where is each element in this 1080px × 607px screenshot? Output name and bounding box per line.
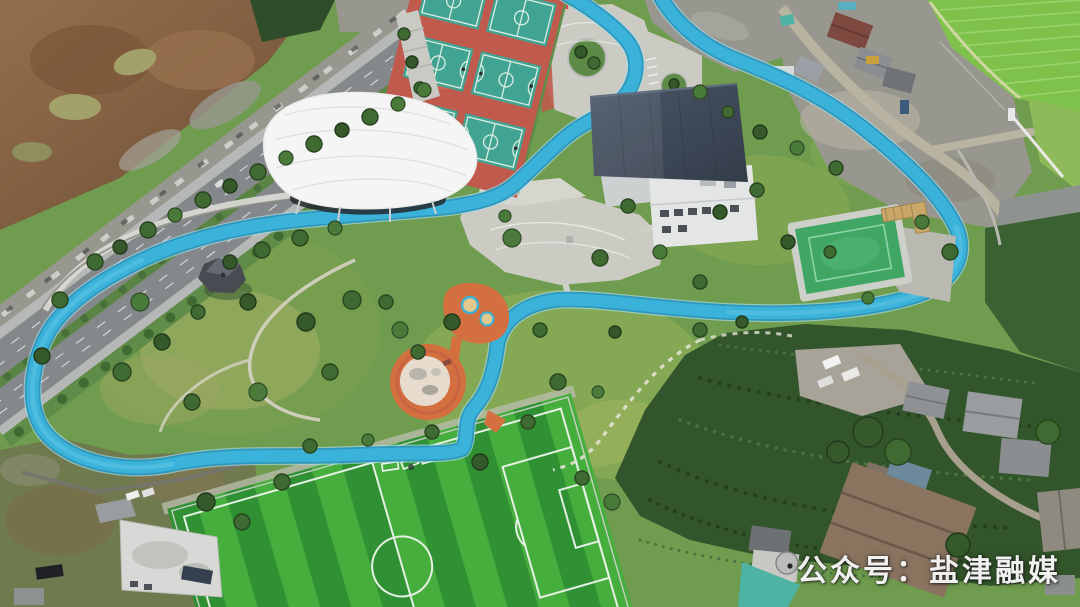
truck xyxy=(900,100,909,114)
satellite-dish xyxy=(776,552,798,574)
playground-map-circle xyxy=(400,356,450,406)
sand-circle xyxy=(462,297,478,313)
watermark-text: 公众号：盐津融媒 xyxy=(797,546,1080,590)
excavator xyxy=(866,56,879,64)
plaza-tree xyxy=(592,250,608,266)
tree-island xyxy=(568,39,606,77)
plaza-tree xyxy=(503,229,521,247)
aerial-scene xyxy=(0,0,1080,607)
sand-circle-2 xyxy=(481,313,494,326)
aerial-photo: 公众号：盐津融媒 xyxy=(0,0,1080,607)
